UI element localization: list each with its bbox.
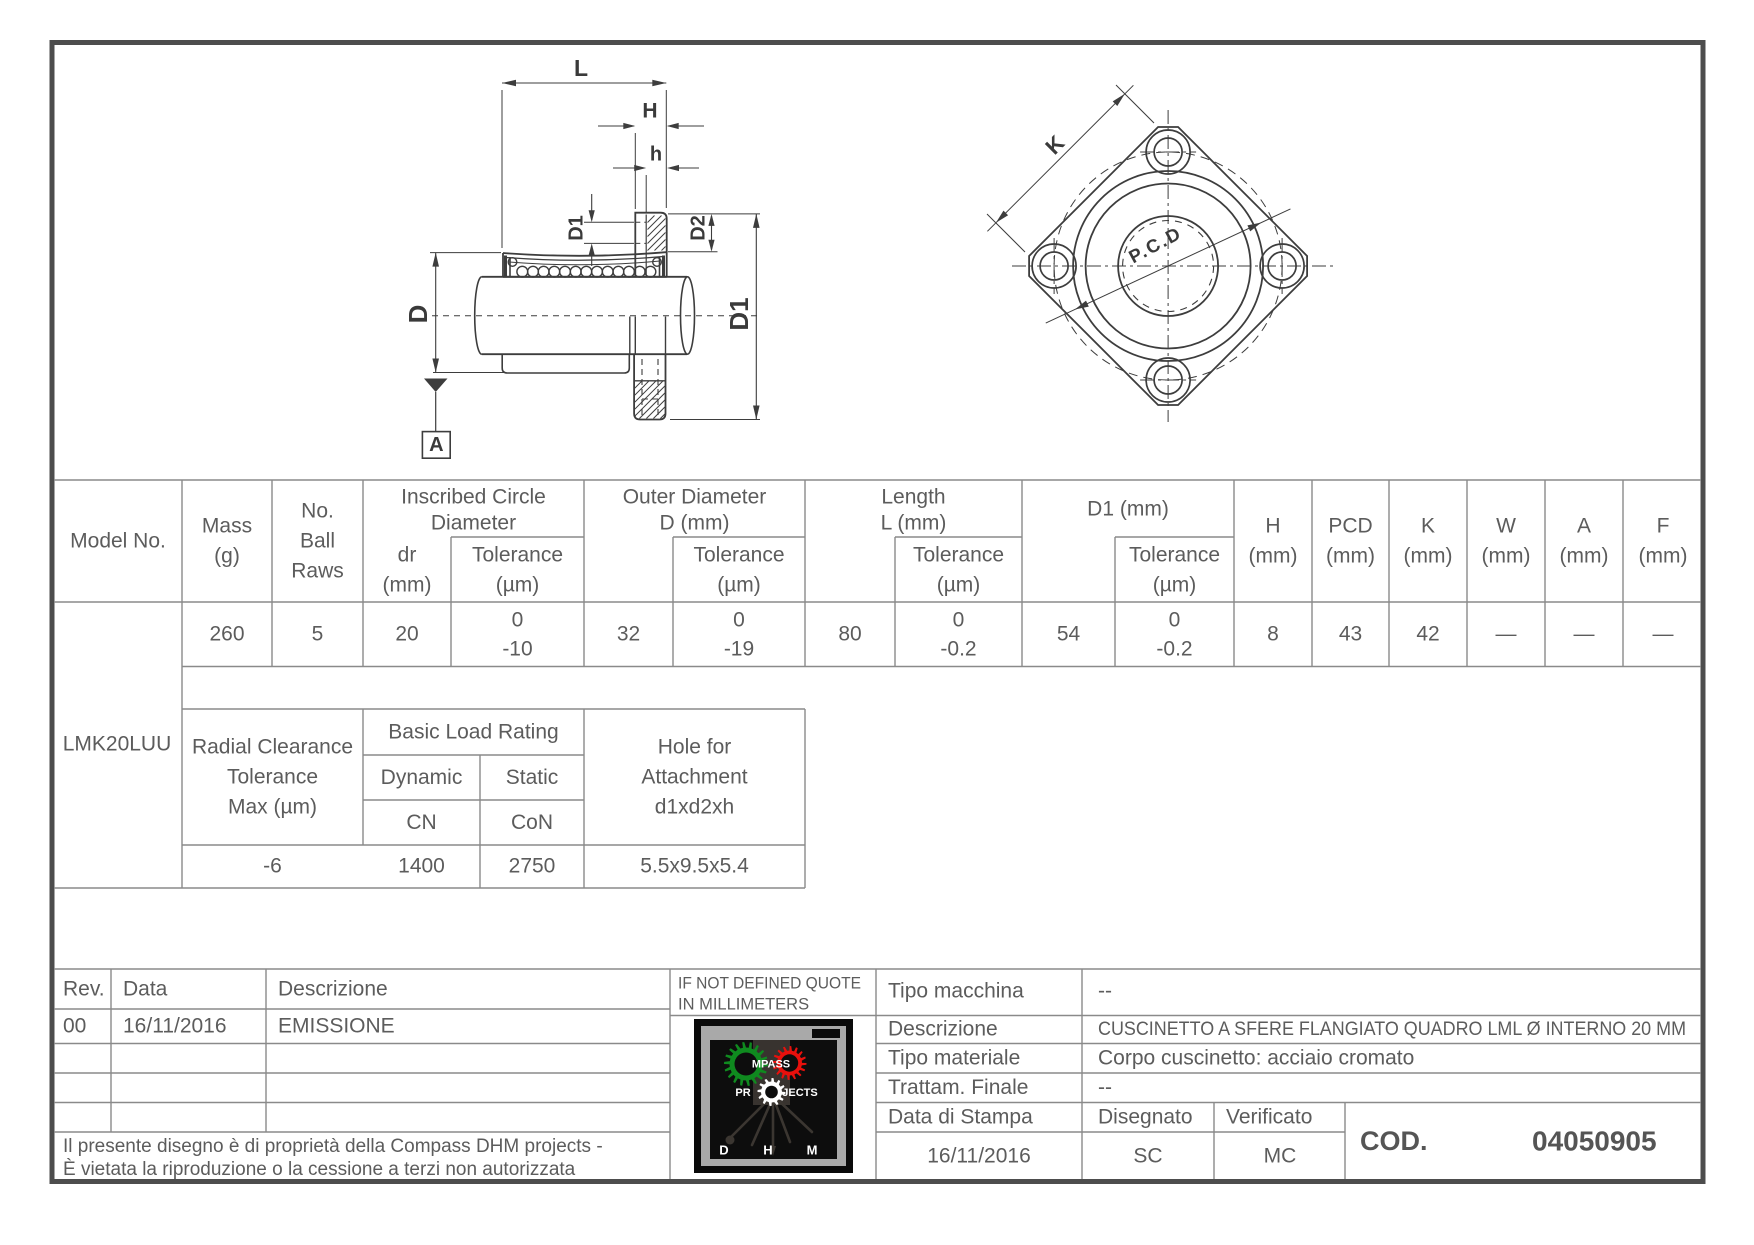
svg-text:Corpo cuscinetto: acciaio crom: Corpo cuscinetto: acciaio cromato [1098,1047,1414,1070]
svg-text:L (mm): L (mm) [881,512,947,535]
svg-text:D (mm): D (mm) [660,512,730,535]
svg-text:—: — [1574,623,1595,646]
svg-text:F: F [1657,515,1670,538]
svg-text:JECTS: JECTS [782,1087,817,1099]
svg-text:(mm): (mm) [1249,545,1298,568]
svg-text:—: — [1653,623,1674,646]
svg-text:Length: Length [881,486,945,509]
svg-text:0: 0 [1169,609,1181,632]
svg-text:Static: Static [506,766,559,789]
svg-text:H: H [642,100,657,123]
svg-text:Trattam. Finale: Trattam. Finale [888,1076,1028,1099]
svg-text:dr: dr [398,544,417,567]
svg-text:SC: SC [1133,1145,1162,1168]
svg-text:2750: 2750 [509,855,556,878]
svg-text:Hole for: Hole for [658,736,732,759]
svg-text:Dynamic: Dynamic [381,766,463,789]
svg-text:Mass: Mass [202,515,252,538]
svg-text:32: 32 [617,623,640,646]
svg-text:D1: D1 [565,215,587,241]
svg-text:CUSCINETTO A SFERE FLANGIATO Q: CUSCINETTO A SFERE FLANGIATO QUADRO LML … [1098,1019,1686,1040]
svg-text:Tolerance: Tolerance [913,544,1004,567]
svg-text:Descrizione: Descrizione [888,1018,998,1041]
svg-text:D1 (mm): D1 (mm) [1087,498,1169,521]
svg-text:-19: -19 [724,638,754,661]
svg-text:(mm): (mm) [383,574,432,597]
svg-text:Disegnato: Disegnato [1098,1106,1193,1129]
svg-text:16/11/2016: 16/11/2016 [123,1015,227,1038]
svg-text:MPASS: MPASS [752,1058,790,1070]
svg-text:260: 260 [209,623,244,646]
svg-text:Tolerance: Tolerance [227,766,318,789]
svg-text:Tipo macchina: Tipo macchina [888,980,1024,1003]
svg-text:Ball: Ball [300,530,335,553]
svg-text:Descrizione: Descrizione [278,978,388,1001]
svg-text:EMISSIONE: EMISSIONE [278,1015,395,1038]
svg-text:43: 43 [1339,623,1362,646]
svg-text:H: H [1265,515,1280,538]
svg-text:K: K [1421,515,1435,538]
svg-text:CoN: CoN [511,811,553,834]
svg-text:D1: D1 [724,297,754,330]
svg-text:(mm): (mm) [1639,545,1688,568]
svg-text:Tolerance: Tolerance [1129,544,1220,567]
svg-text:54: 54 [1057,623,1081,646]
svg-text:0: 0 [953,609,965,632]
svg-text:A: A [1577,515,1591,538]
svg-text:LMK20LUU: LMK20LUU [63,733,172,756]
svg-text:Attachment: Attachment [641,766,747,789]
svg-text:(µm): (µm) [496,574,540,597]
svg-text:(mm): (mm) [1326,545,1375,568]
svg-text:Tipo materiale: Tipo materiale [888,1047,1020,1070]
svg-text:0: 0 [733,609,745,632]
svg-text:(mm): (mm) [1482,545,1531,568]
svg-text:A: A [429,434,443,456]
svg-text:D2: D2 [687,215,709,241]
svg-text:COD.: COD. [1360,1126,1428,1156]
svg-text:Data di Stampa: Data di Stampa [888,1106,1033,1129]
svg-text:5: 5 [312,623,324,646]
svg-text:No.: No. [301,500,334,523]
svg-text:Outer Diameter: Outer Diameter [623,486,767,509]
svg-text:8: 8 [1267,623,1279,646]
svg-text:Diameter: Diameter [431,512,516,535]
svg-text:PCD: PCD [1328,515,1372,538]
svg-text:D: D [403,305,433,324]
svg-text:W: W [1496,515,1516,538]
svg-text:PR: PR [735,1087,750,1099]
svg-text:Radial Clearance: Radial Clearance [192,736,353,759]
svg-text:16/11/2016: 16/11/2016 [927,1145,1031,1168]
svg-text:Tolerance: Tolerance [472,544,563,567]
svg-text:Raws: Raws [291,560,344,583]
svg-text:(mm): (mm) [1404,545,1453,568]
svg-text:-10: -10 [502,638,532,661]
svg-text:-6: -6 [263,855,282,878]
svg-text:0: 0 [512,609,524,632]
svg-text:IN MILLIMETERS: IN MILLIMETERS [678,995,809,1013]
svg-text:L: L [574,55,588,81]
svg-text:5.5x9.5x5.4: 5.5x9.5x5.4 [640,855,749,878]
svg-text:Model No.: Model No. [70,530,166,553]
svg-text:20: 20 [395,623,418,646]
svg-text:Inscribed Circle: Inscribed Circle [401,486,546,509]
svg-text:Tolerance: Tolerance [693,544,784,567]
svg-text:(µm): (µm) [717,574,761,597]
svg-text:MC: MC [1264,1145,1297,1168]
svg-text:-0.2: -0.2 [1156,638,1192,661]
svg-text:Max (µm): Max (µm) [228,796,317,819]
svg-text:-0.2: -0.2 [940,638,976,661]
svg-text:Rev.: Rev. [63,978,105,1001]
svg-text:H: H [763,1142,772,1157]
svg-text:42: 42 [1416,623,1439,646]
svg-text:(µm): (µm) [1153,574,1197,597]
svg-text:80: 80 [838,623,861,646]
svg-text:--: -- [1098,1076,1112,1099]
svg-text:(µm): (µm) [937,574,981,597]
svg-text:--: -- [1098,980,1112,1003]
svg-text:(g): (g) [214,545,240,568]
svg-text:h: h [650,143,662,165]
svg-text:Verificato: Verificato [1226,1106,1312,1129]
svg-text:(mm): (mm) [1560,545,1609,568]
svg-text:Il presente disegno è di propr: Il presente disegno è di proprietà della… [63,1136,603,1157]
svg-text:M: M [807,1142,818,1157]
svg-text:Data: Data [123,978,168,1001]
svg-text:04050905: 04050905 [1532,1125,1657,1156]
svg-text:d1xd2xh: d1xd2xh [655,796,734,819]
svg-text:CN: CN [406,811,436,834]
svg-text:Basic Load Rating: Basic Load Rating [388,721,558,744]
svg-text:00: 00 [63,1015,86,1038]
svg-text:IF NOT DEFINED QUOTE: IF NOT DEFINED QUOTE [678,974,861,992]
svg-text:1400: 1400 [398,855,445,878]
svg-text:D: D [719,1142,728,1157]
svg-text:È vietata la riproduzione o la: È vietata la riproduzione o la cessione … [63,1159,576,1180]
svg-text:—: — [1496,623,1517,646]
